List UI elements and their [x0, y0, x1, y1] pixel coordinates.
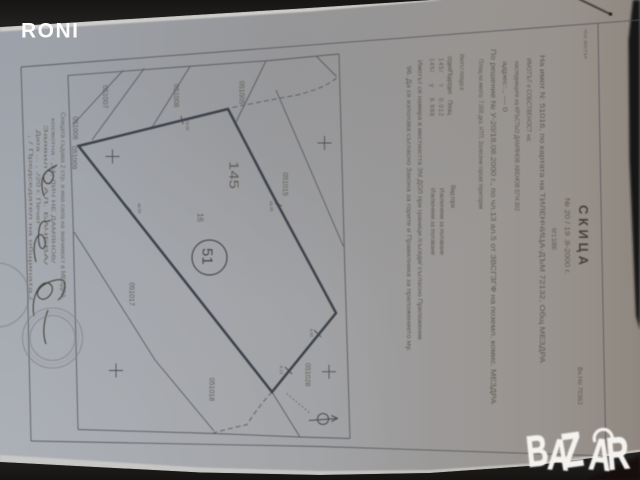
svg-text:96. Да се използва съгласно За: 96. Да се използва съгласно Закона за го… — [405, 66, 412, 351]
svg-text:Имотът попада в:: Имотът попада в: — [458, 54, 465, 91]
svg-text:наследниците на КРЪСТЬО ДАМ: наследниците на КРЪСТЬО ДАМЯНОВ АВЕНОВ Е… — [513, 61, 520, 211]
svg-text:051017: 051017 — [128, 283, 135, 306]
svg-text:адрес:., — 0: адрес:., — 0 — [501, 61, 508, 113]
svg-text:По решение № У-20/18.08.2000 г: По решение № У-20/18.08.2000 г., по чл.1… — [489, 49, 496, 404]
svg-text:№ 20 / 19 .8-2000 г.: № 20 / 19 .8-2000 г. — [563, 198, 572, 274]
svg-text:051009: 051009 — [70, 146, 77, 169]
svg-text:16: 16 — [196, 213, 205, 222]
svg-text:Площ на имота: 7.000 дка. НТП: Площ на имота: 7.000 дка. НТП: Залесени … — [477, 59, 483, 209]
svg-text:Изключени за ползване: Изключени за ползване — [429, 188, 435, 256]
svg-text:6.988: 6.988 — [428, 98, 434, 117]
svg-text:Имотът се намира в местността: Имотът се намира в местността ЗМ ДОЛ при… — [416, 60, 423, 340]
svg-text:, / Председател на о: , / Председател на общината / — [27, 135, 33, 301]
svg-text:145: 145 — [227, 161, 242, 189]
svg-text:Изключени за ползване: Изключени за ползване — [438, 188, 444, 256]
svg-text:ав.04: ав.04 — [137, 203, 142, 214]
svg-text:М 1:1000: М 1:1000 — [550, 228, 556, 251]
svg-text:отдел/Подотдел: отдел/Подотдел — [446, 56, 452, 94]
svg-text:ов.20: ов.20 — [269, 201, 274, 212]
svg-text:На имот N: 51016, по картата н: На имот N: 51016, по картата на ТИЛЕНЧИЦ… — [538, 55, 546, 363]
svg-text:51: 51 — [199, 248, 216, 265]
svg-text:051028: 051028 — [304, 363, 311, 386]
svg-text:косвотна : „М„ ЛИЧ НЕ Д: косвотна : „М„ ЛИЧ НЕ ДАМЯНОВ/ — [50, 118, 56, 264]
svg-text:Вх.Но 70362: Вх.Но 70362 — [576, 367, 582, 406]
svg-text:051005: 051005 — [237, 81, 244, 104]
svg-text:в.13: в.13 — [279, 366, 284, 375]
svg-text:145/: 145/ — [437, 58, 443, 72]
svg-text:051015: 051015 — [281, 173, 288, 196]
svg-text:145/: 145/ — [428, 58, 434, 72]
svg-text:19.56: 19.56 — [185, 120, 190, 131]
svg-text:R: R — [604, 427, 631, 480]
svg-text:051018: 051018 — [208, 378, 215, 401]
svg-text:Вид гора: Вид гора — [449, 185, 455, 209]
svg-text:051006: 051006 — [71, 117, 78, 140]
svg-text:Площ: Площ — [446, 100, 452, 115]
svg-text:ИМОТЪТ е СОБСТВЕНОСТ на:: ИМОТЪТ е СОБСТВЕНОСТ на: — [525, 58, 532, 142]
svg-text:RONI: RONI — [21, 20, 80, 43]
svg-text:0.012: 0.012 — [437, 98, 443, 117]
svg-text:051008: 051008 — [172, 84, 179, 107]
svg-text:051007: 051007 — [101, 85, 108, 108]
svg-text:С К И Ц А: С К И Ц А — [576, 205, 591, 266]
svg-text:у: у — [428, 84, 434, 87]
svg-text:в.96: в.96 — [309, 329, 314, 338]
svg-text:Скицата съдава 2 стр. и има си: Скицата съдава 2 стр. и има сила на знач… — [59, 112, 65, 300]
svg-text:ЧСИ ЛИСТЪР: ЧСИ ЛИСТЪР — [583, 29, 588, 59]
svg-text:т: т — [437, 84, 443, 87]
svg-text:Дата ... , ./20 г. Печа: Дата ... , ./20 г. Печат : — [35, 130, 41, 231]
